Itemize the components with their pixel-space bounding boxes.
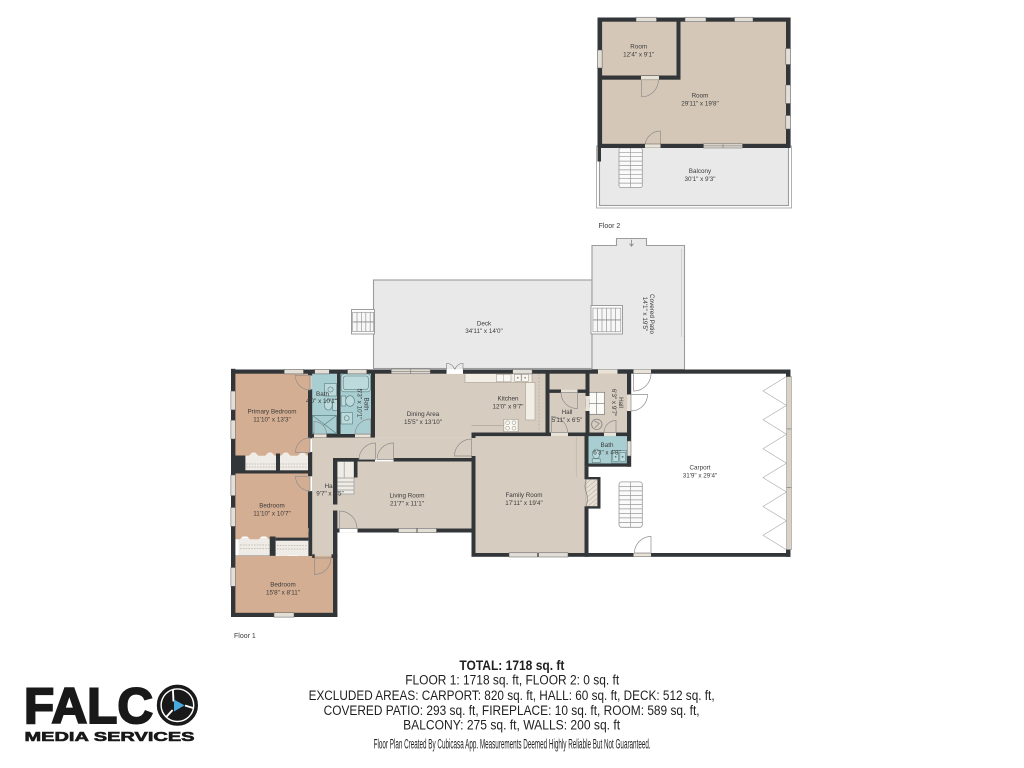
svg-text:15'8" x 8'11": 15'8" x 8'11" <box>266 589 300 596</box>
svg-text:Living Room: Living Room <box>390 493 425 500</box>
svg-text:Bedroom: Bedroom <box>270 582 296 589</box>
svg-text:12'4" x 9'1": 12'4" x 9'1" <box>623 51 654 58</box>
svg-text:30'1" x 9'3": 30'1" x 9'3" <box>684 176 715 183</box>
svg-text:FLOOR 1: 1718 sq. ft, FLOOR 2:: FLOOR 1: 1718 sq. ft, FLOOR 2: 0 sq. ft <box>405 673 619 688</box>
svg-text:6'3" x 4'8": 6'3" x 4'8" <box>593 450 621 457</box>
svg-text:6'3" x 9'7": 6'3" x 9'7" <box>610 389 617 417</box>
svg-text:Bath: Bath <box>601 442 614 449</box>
svg-text:34'11" x 14'0": 34'11" x 14'0" <box>465 328 503 335</box>
svg-text:5'3" x 10'1": 5'3" x 10'1" <box>356 388 363 419</box>
svg-text:12'0" x 9'7": 12'0" x 9'7" <box>492 403 523 410</box>
svg-text:Balcony: Balcony <box>689 168 712 175</box>
svg-text:Primary Bedroom: Primary Bedroom <box>248 409 297 416</box>
svg-text:14'1" x 19'5": 14'1" x 19'5" <box>641 297 648 332</box>
svg-text:15'5" x 13'10": 15'5" x 13'10" <box>404 419 442 426</box>
svg-text:FALC: FALC <box>24 678 153 734</box>
svg-text:Floor 1: Floor 1 <box>234 633 256 640</box>
svg-text:11'10" x 10'7": 11'10" x 10'7" <box>253 510 291 517</box>
svg-text:17'11" x 19'4": 17'11" x 19'4" <box>505 500 543 507</box>
svg-text:Bath: Bath <box>363 398 370 411</box>
svg-text:MEDIA SERVICES: MEDIA SERVICES <box>25 729 195 744</box>
svg-text:Deck: Deck <box>477 320 492 327</box>
svg-text:Floor 2: Floor 2 <box>599 223 621 230</box>
svg-text:11'10" x 13'3": 11'10" x 13'3" <box>253 416 291 423</box>
svg-text:Family Room: Family Room <box>505 492 542 499</box>
svg-text:Hall: Hall <box>617 397 624 408</box>
svg-text:9'7" x 3'5": 9'7" x 3'5" <box>316 491 344 498</box>
svg-text:Hall: Hall <box>325 483 336 490</box>
svg-text:31'9" x 29'4": 31'9" x 29'4" <box>683 472 718 479</box>
svg-text:BALCONY: 275 sq. ft, WALLS: 20: BALCONY: 275 sq. ft, WALLS: 200 sq. ft <box>403 718 620 733</box>
svg-text:Room: Room <box>630 44 647 51</box>
svg-text:Carport: Carport <box>690 465 711 472</box>
svg-text:Kitchen: Kitchen <box>497 396 519 403</box>
svg-text:4'0" x 10'1": 4'0" x 10'1" <box>306 398 337 405</box>
svg-text:Dining Area: Dining Area <box>407 411 440 418</box>
svg-text:TOTAL: 1718 sq. ft: TOTAL: 1718 sq. ft <box>459 658 564 673</box>
svg-text:Room: Room <box>692 93 709 100</box>
svg-text:COVERED PATIO: 293 sq. ft, FIR: COVERED PATIO: 293 sq. ft, FIREPLACE: 10… <box>324 703 700 718</box>
svg-text:Hall: Hall <box>562 409 573 416</box>
svg-text:29'11" x 19'8": 29'11" x 19'8" <box>681 100 719 107</box>
svg-text:Bedroom: Bedroom <box>259 503 285 510</box>
svg-text:EXCLUDED AREAS: CARPORT: 820 s: EXCLUDED AREAS: CARPORT: 820 sq. ft, HAL… <box>309 688 715 703</box>
svg-text:21'7" x 11'1": 21'7" x 11'1" <box>390 500 424 507</box>
svg-text:Floor Plan Created By Cubicasa: Floor Plan Created By Cubicasa App. Meas… <box>374 737 651 752</box>
svg-text:5'11" x 6'5": 5'11" x 6'5" <box>552 417 583 424</box>
svg-text:Bath: Bath <box>316 391 329 398</box>
svg-text:Covered Patio: Covered Patio <box>648 294 655 334</box>
